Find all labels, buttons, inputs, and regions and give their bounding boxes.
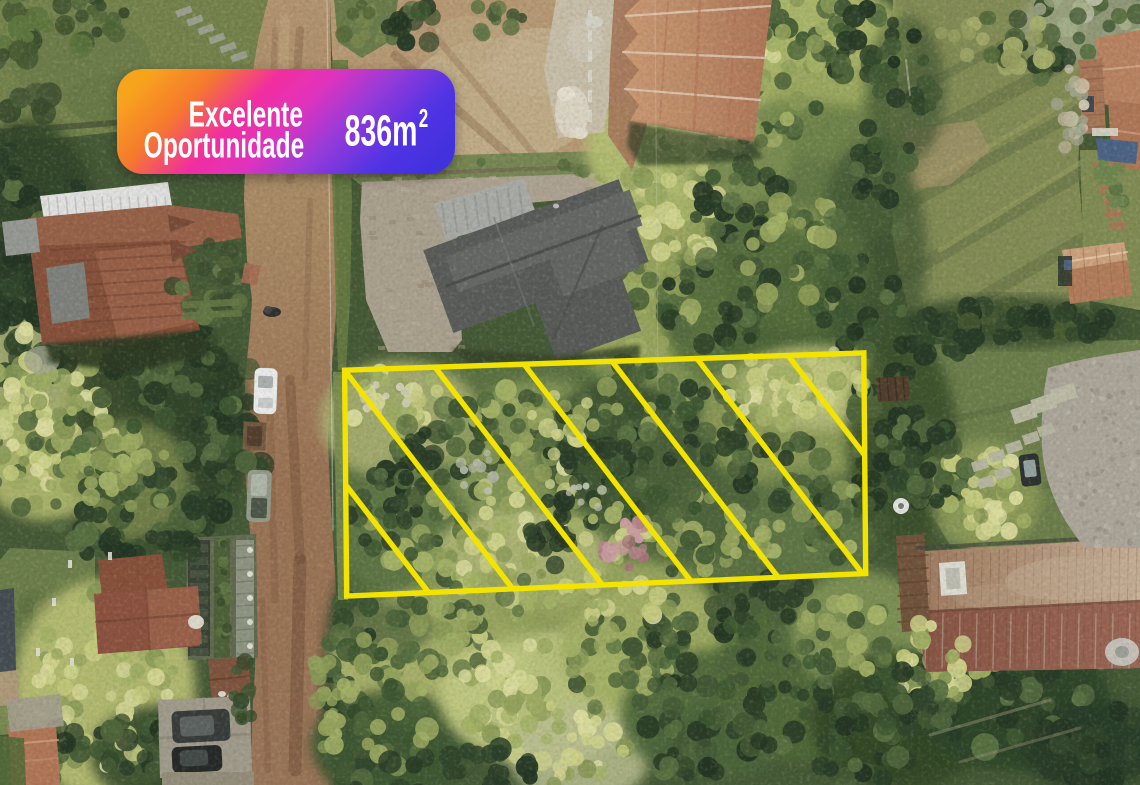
svg-text:Oportunidade: Oportunidade <box>144 125 304 166</box>
svg-text:836m: 836m <box>345 106 418 155</box>
svg-text:2: 2 <box>419 103 428 133</box>
